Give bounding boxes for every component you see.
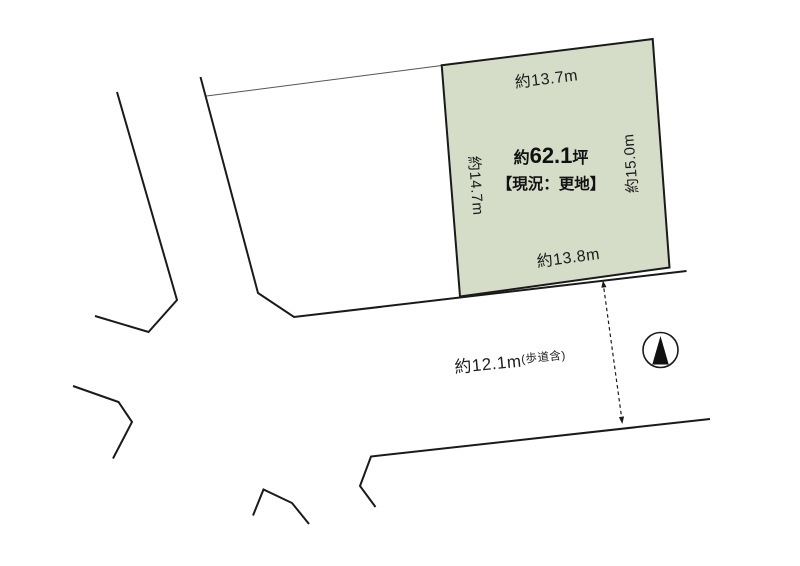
road-width-label: 約12.1m(歩道含): [454, 347, 567, 377]
road-width-dimension-line: [603, 282, 622, 423]
parcel-status-label: 【現況：更地】: [497, 174, 606, 193]
road-width-note: (歩道含): [521, 348, 567, 366]
road-edge-lower-left-lower: [253, 490, 309, 525]
land-plot-diagram: 約13.7m 約14.7m 約15.0m 約13.8m 約62.1坪 【現況：更…: [0, 0, 800, 566]
road-width-dimension: 約12.1m(歩道含): [454, 281, 625, 425]
arrowhead-down-icon: [619, 416, 624, 424]
road-edge-lower-left-upper: [73, 386, 132, 459]
area-value: 62.1: [530, 143, 573, 168]
north-arrow-icon: [643, 333, 678, 368]
area-unit: 坪: [572, 149, 588, 167]
site-plan-svg: 約13.7m 約14.7m 約15.0m 約13.8m 約62.1坪 【現況：更…: [0, 0, 800, 566]
area-prefix: 約: [514, 148, 530, 167]
road-edge-upper-left: [95, 92, 177, 332]
road-edge-bottom: [360, 419, 710, 507]
road-width-value: 約12.1m: [454, 352, 523, 377]
neighbor-boundary-line: [207, 66, 442, 97]
